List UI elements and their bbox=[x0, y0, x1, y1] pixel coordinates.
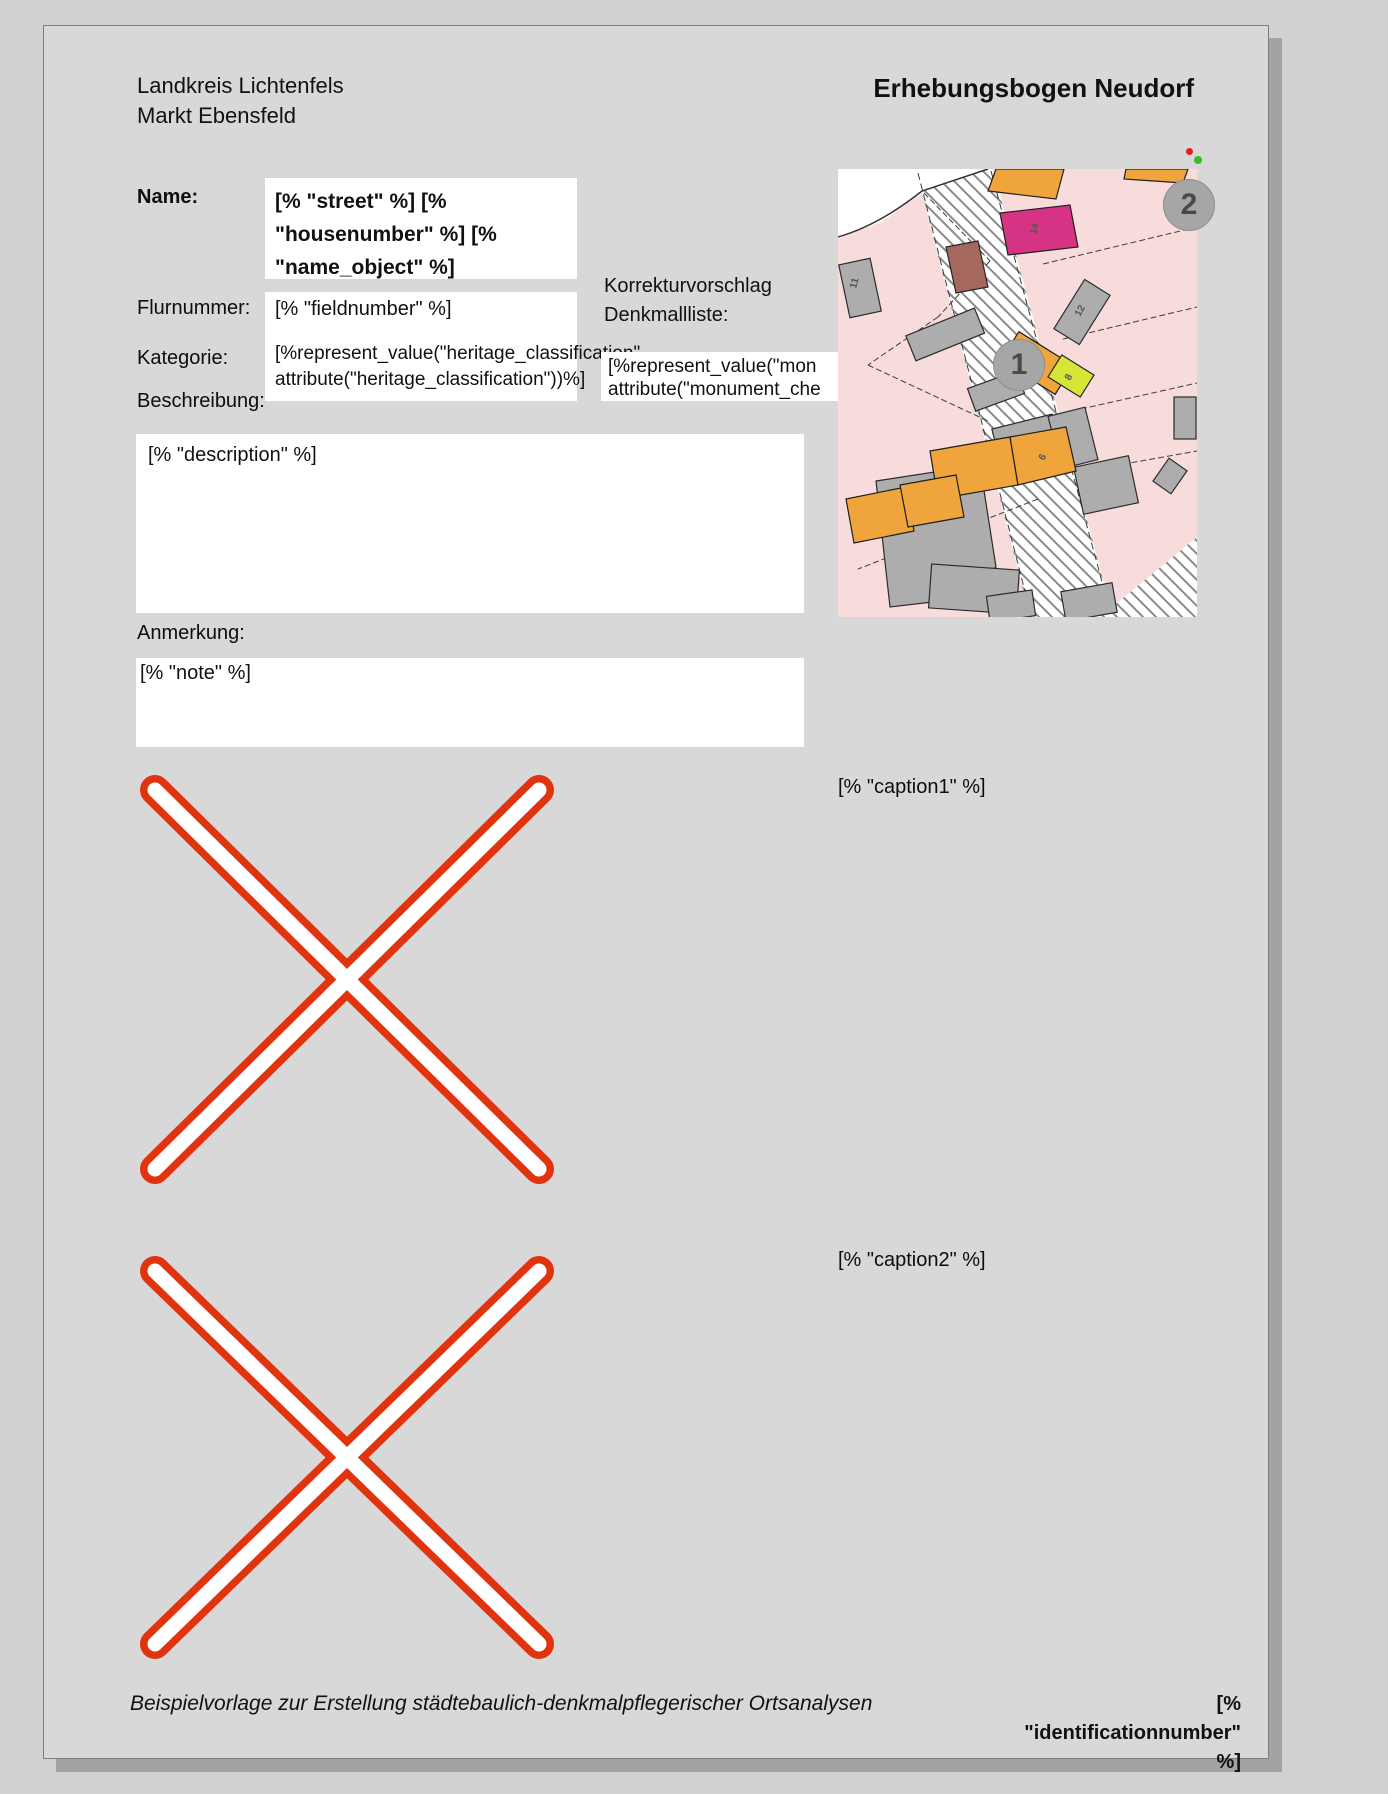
correction-value-line1: [%represent_value("mon bbox=[608, 355, 841, 378]
name-field[interactable]: [% "street" %] [% "housenumber" %] [% "n… bbox=[265, 178, 577, 279]
layout-canvas: Landkreis Lichtenfels Markt Ebensfeld Er… bbox=[0, 0, 1388, 1794]
photo2-missing-image[interactable] bbox=[138, 1254, 556, 1661]
org-line1: Landkreis Lichtenfels bbox=[137, 71, 344, 101]
map-marker-1: 1 bbox=[993, 339, 1045, 391]
identification-line1: [% bbox=[961, 1690, 1241, 1719]
page-title: Erhebungsbogen Neudorf bbox=[694, 73, 1194, 104]
category-value-line2: attribute("heritage_classification"))%] bbox=[275, 367, 577, 393]
category-value-line1: [%represent_value("heritage_classificati… bbox=[275, 341, 577, 367]
description-field[interactable]: [% "description" %] bbox=[136, 434, 804, 613]
description-label: Beschreibung: bbox=[137, 390, 265, 413]
missing-image-x-icon bbox=[138, 1254, 556, 1661]
identification-line2: "identificationnumber" bbox=[961, 1719, 1241, 1748]
note-value: [% "note" %] bbox=[136, 658, 804, 685]
footer-note: Beispielvorlage zur Erstellung städtebau… bbox=[130, 1692, 872, 1716]
correction-label-line1: Korrekturvorschlag bbox=[604, 272, 772, 301]
missing-image-x-icon bbox=[138, 773, 556, 1186]
category-label: Kategorie: bbox=[137, 347, 228, 370]
name-value-line2: "housenumber" %] [% bbox=[275, 218, 577, 251]
note-label: Anmerkung: bbox=[137, 622, 245, 645]
note-field[interactable]: [% "note" %] bbox=[136, 658, 804, 747]
correction-label: Korrekturvorschlag Denkmallliste: bbox=[604, 272, 772, 330]
correction-label-line2: Denkmallliste: bbox=[604, 301, 772, 330]
org-line2: Markt Ebensfeld bbox=[137, 101, 344, 131]
org-header: Landkreis Lichtenfels Markt Ebensfeld bbox=[137, 71, 344, 131]
name-value-line1: [% "street" %] [% bbox=[275, 185, 577, 218]
red-dot-icon bbox=[1186, 148, 1193, 155]
photo2-caption: [% "caption2" %] bbox=[838, 1249, 986, 1272]
correction-field[interactable]: [%represent_value("mon attribute("monume… bbox=[601, 352, 841, 401]
fieldnumber-value: [% "fieldnumber" %] bbox=[265, 292, 577, 321]
fieldnumber-field[interactable]: [% "fieldnumber" %] bbox=[265, 292, 577, 338]
name-value-line3: "name_object" %] bbox=[275, 251, 577, 284]
green-dot-icon bbox=[1194, 156, 1202, 164]
photo1-missing-image[interactable] bbox=[138, 773, 556, 1186]
category-field[interactable]: [%represent_value("heritage_classificati… bbox=[265, 334, 577, 401]
identification-line3: %] bbox=[961, 1748, 1241, 1777]
cadastral-map-image: 11 14 12 10 8 6 bbox=[838, 169, 1197, 617]
description-value: [% "description" %] bbox=[136, 434, 804, 467]
fieldnumber-label: Flurnummer: bbox=[137, 297, 250, 320]
report-page: Landkreis Lichtenfels Markt Ebensfeld Er… bbox=[43, 25, 1269, 1759]
correction-value-line2: attribute("monument_che bbox=[608, 378, 841, 401]
identification-number: [% "identificationnumber" %] bbox=[961, 1690, 1241, 1777]
location-map[interactable]: 11 14 12 10 8 6 bbox=[838, 169, 1197, 617]
photo1-caption: [% "caption1" %] bbox=[838, 776, 986, 799]
name-label: Name: bbox=[137, 186, 198, 209]
map-marker-2: 2 bbox=[1163, 179, 1215, 231]
